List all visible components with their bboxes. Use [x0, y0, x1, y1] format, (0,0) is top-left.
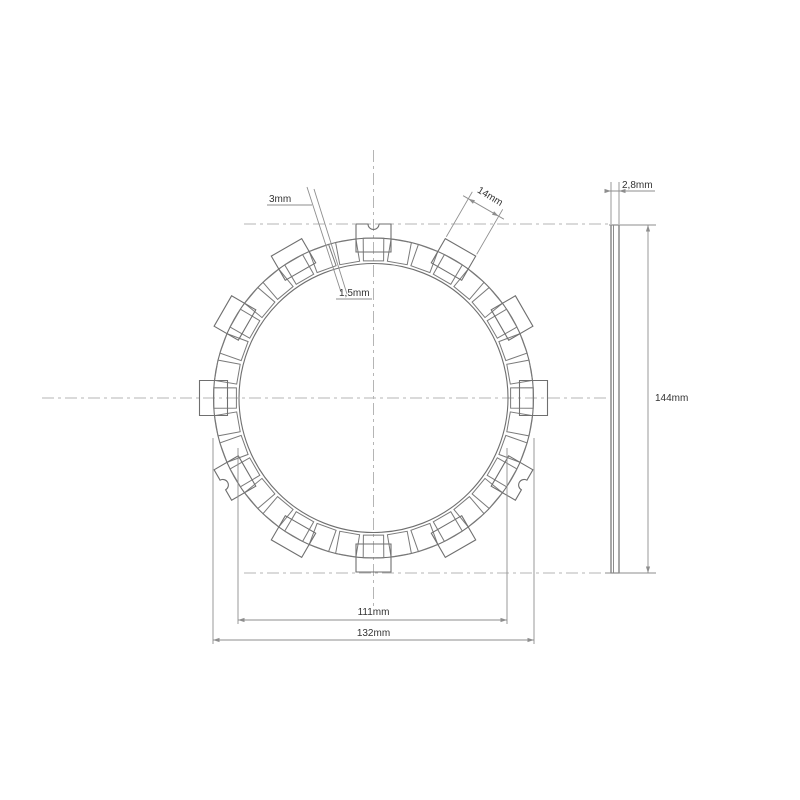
friction-pad [245, 288, 275, 318]
dim-thickness-label: 2,8mm [622, 180, 653, 191]
friction-pad [454, 497, 484, 527]
technical-drawing: 3mm 1,5mm 14mm 2,8mm 144mm 111mm 132mm [0, 0, 800, 800]
dim-groove-outer-label: 3mm [269, 194, 291, 205]
groove-leader-line [307, 187, 341, 292]
centerlines [42, 150, 610, 608]
friction-pad [245, 478, 275, 508]
plate-side-view [611, 225, 619, 573]
friction-pad [472, 478, 502, 508]
dim-groove-inner-label: 1,5mm [339, 288, 370, 299]
friction-pad [263, 497, 293, 527]
dim-outer-diameter-label: 132mm [357, 628, 390, 639]
friction-pad [472, 288, 502, 318]
drawing-geometry [42, 150, 656, 644]
dim-overall-height-label: 144mm [655, 393, 688, 404]
side-view-outline [611, 225, 619, 573]
dim-inner-diameter-label: 111mm [358, 607, 390, 618]
friction-pad [263, 269, 293, 299]
friction-pad [454, 269, 484, 299]
